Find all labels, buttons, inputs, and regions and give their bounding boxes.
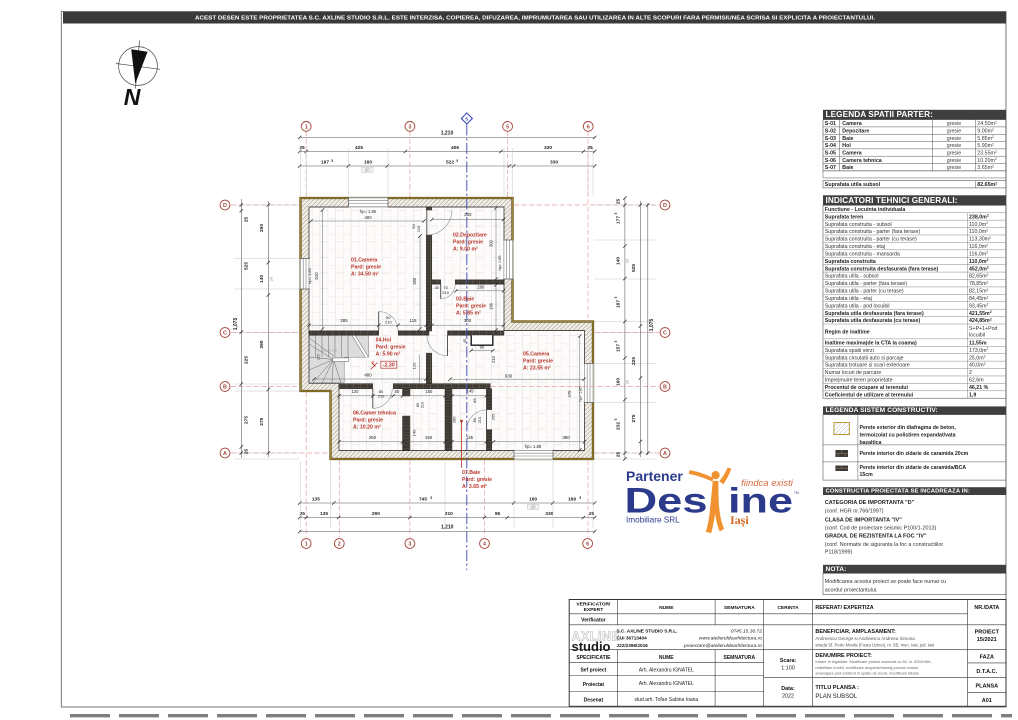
svg-text:275: 275 (244, 416, 250, 424)
svg-text:4: 4 (483, 541, 486, 547)
svg-text:475: 475 (567, 390, 572, 398)
svg-text:40,0m2: 40,0m2 (969, 362, 986, 369)
svg-text:Suprafata construita: Suprafata construita (825, 259, 876, 265)
svg-text:225: 225 (316, 354, 320, 360)
svg-text:2: 2 (969, 370, 972, 376)
svg-text:LEGENDA SISTEM CONSTRUCTIV:: LEGENDA SISTEM CONSTRUCTIV: (826, 407, 938, 414)
svg-text:Depozitare: Depozitare (842, 128, 869, 134)
svg-text:NUME: NUME (659, 655, 674, 661)
svg-text:390: 390 (562, 435, 570, 440)
svg-text:150: 150 (425, 389, 433, 394)
svg-text:232: 232 (616, 422, 622, 430)
svg-text:gresie: gresie (947, 121, 961, 127)
svg-text:46,21 %: 46,21 % (969, 385, 989, 391)
svg-text:250: 250 (369, 435, 377, 440)
svg-text:Desenat: Desenat (584, 698, 604, 704)
svg-text:Sef proiect: Sef proiect (580, 668, 606, 674)
svg-text:95: 95 (495, 511, 501, 517)
svg-text:3: 3 (408, 124, 411, 130)
svg-text:02.Depozitare: 02.Depozitare (453, 233, 487, 239)
svg-text:113,30m2: 113,30m2 (969, 236, 991, 243)
svg-text:20: 20 (270, 277, 274, 281)
svg-text:745: 745 (419, 496, 427, 502)
svg-text:NOTA:: NOTA: (826, 566, 847, 573)
svg-text:Camera: Camera (842, 121, 861, 127)
svg-text:20: 20 (531, 504, 536, 509)
svg-text:J22/2396/2016: J22/2396/2016 (617, 643, 649, 648)
svg-text:Iaşi: Iaşi (730, 513, 749, 527)
svg-text:480: 480 (364, 372, 372, 377)
svg-text:9.00m2: 9.00m2 (977, 128, 994, 135)
svg-text:196: 196 (488, 302, 493, 310)
svg-text:gresie: gresie (947, 150, 961, 156)
svg-text:120: 120 (352, 389, 360, 394)
svg-text:D: D (223, 203, 227, 209)
svg-text:1:100: 1:100 (781, 665, 795, 671)
svg-text:45: 45 (463, 339, 467, 343)
svg-text:452,0m2: 452,0m2 (969, 266, 989, 273)
svg-text:5.90m2: 5.90m2 (977, 143, 994, 150)
svg-text:strada Sf. Petru Movila (Fosta: strada Sf. Petru Movila (Fosta Uzinei), … (815, 643, 934, 648)
svg-text:A: A (663, 451, 667, 457)
svg-text:177: 177 (616, 216, 622, 224)
svg-text:140: 140 (616, 257, 622, 265)
svg-text:140: 140 (412, 429, 417, 436)
svg-text:290: 290 (372, 511, 380, 517)
svg-text:23.55m2: 23.55m2 (977, 150, 997, 157)
svg-text:Suprafata utila - subsol: Suprafata utila - subsol (825, 274, 879, 280)
svg-text:studio: studio (572, 639, 611, 654)
svg-text:hp= 1.85: hp= 1.85 (307, 267, 312, 283)
svg-text:04.Hol: 04.Hol (376, 338, 392, 344)
svg-text:S-03: S-03 (825, 136, 836, 142)
svg-text:25: 25 (616, 452, 622, 458)
svg-text:Pard: gresie: Pard: gresie (353, 417, 383, 423)
svg-text:gresie: gresie (947, 128, 961, 134)
svg-text:80: 80 (416, 403, 420, 407)
svg-text:Arh. Alexandru IGNATEL: Arh. Alexandru IGNATEL (639, 681, 694, 687)
svg-text:200: 200 (477, 284, 485, 289)
svg-text:termoizolat cu polistiren expa: termoizolat cu polistiren expandat/vata (860, 433, 956, 439)
svg-text:390: 390 (259, 340, 265, 348)
svg-text:proiectare@atelieruldearhitect: proiectare@atelieruldearhitectura.ro (683, 643, 762, 649)
svg-text:Inaltime maxima(de la CTA la c: Inaltime maxima(de la CTA la coama) (825, 340, 917, 346)
svg-text:Proiectat: Proiectat (583, 682, 605, 688)
svg-text:135: 135 (312, 496, 320, 502)
svg-text:Suprafata trotuare si scari ex: Suprafata trotuare si scari exterioare (825, 363, 910, 369)
svg-text:REFERAT/ EXPERTIZA: REFERAT/ EXPERTIZA (815, 605, 873, 611)
svg-text:25: 25 (299, 145, 305, 151)
svg-text:Verificator: Verificator (581, 617, 606, 623)
svg-text:amenajare pod existent in spat: amenajare pod existent in spatiu de locu… (815, 670, 919, 675)
svg-text:hp= 1.85: hp= 1.85 (498, 256, 502, 271)
svg-text:Pard: gresie: Pard: gresie (453, 239, 483, 245)
svg-text:(conf. HGR nr.766/1997): (conf. HGR nr.766/1997) (825, 509, 884, 515)
svg-text:hp= 1.85: hp= 1.85 (525, 444, 542, 449)
svg-text:Suprafata utila - parter (cu t: Suprafata utila - parter (cu terase) (825, 289, 904, 295)
svg-text:bazaltica: bazaltica (860, 440, 882, 446)
svg-text:Pard: gresie: Pard: gresie (456, 303, 486, 309)
svg-text:S-02: S-02 (825, 128, 836, 134)
svg-text:5: 5 (614, 212, 618, 214)
svg-text:25: 25 (244, 449, 250, 455)
svg-text:TITLU PLANSA :: TITLU PLANSA : (815, 685, 859, 691)
svg-text:3: 3 (408, 541, 411, 547)
svg-text:116,0m2: 116,0m2 (969, 251, 988, 258)
svg-text:Suprafata spatii verzi: Suprafata spatii verzi (825, 348, 874, 354)
svg-text:EXPERT: EXPERT (584, 607, 604, 613)
svg-text:Suprafata construita - parter: Suprafata construita - parter (cu terase… (825, 237, 917, 243)
svg-text:-2.30: -2.30 (383, 363, 395, 369)
svg-text:stud.arh. Tofan Sabina Ioana: stud.arh. Tofan Sabina Ioana (634, 697, 698, 703)
svg-text:Suprafata circulatii auto si p: Suprafata circulatii auto si parcaje (825, 355, 904, 361)
svg-text:510: 510 (314, 272, 319, 280)
svg-text:5: 5 (456, 159, 458, 163)
svg-text:N: N (124, 84, 141, 110)
svg-text:S-07: S-07 (825, 165, 836, 171)
svg-text:ACEST DESEN ESTE PROPRIETATEA: ACEST DESEN ESTE PROPRIETATEA S.C. AXLIN… (195, 16, 876, 22)
svg-text:50: 50 (395, 389, 400, 394)
svg-text:gresie: gresie (947, 158, 961, 164)
svg-text:P118/1999): P118/1999) (825, 549, 853, 555)
svg-text:01.Camera: 01.Camera (351, 258, 377, 264)
svg-text:93,45m2: 93,45m2 (969, 303, 989, 310)
svg-text:SEMNATURA: SEMNATURA (724, 605, 755, 611)
svg-text:6: 6 (587, 124, 590, 130)
svg-text:PLANSA: PLANSA (975, 684, 998, 690)
svg-text:S-06: S-06 (825, 158, 836, 164)
svg-text:1,075: 1,075 (233, 318, 239, 331)
svg-text:300: 300 (464, 212, 472, 217)
svg-text:Suprafata construita - etaj: Suprafata construita - etaj (825, 244, 885, 250)
svg-text:285: 285 (340, 318, 348, 323)
svg-text:5: 5 (506, 124, 509, 130)
svg-text:160: 160 (529, 496, 537, 502)
svg-text:SPECIFICATIE: SPECIFICATIE (576, 655, 611, 661)
svg-text:hp= 1.85: hp= 1.85 (360, 209, 377, 214)
svg-text:10.20m2: 10.20m2 (977, 157, 997, 164)
svg-text:C: C (223, 330, 227, 336)
svg-text:(conf. Normativ de siguranta l: (conf. Normativ de siguranta la foc a co… (825, 542, 944, 548)
svg-text:Andreescu George si Andreescu: Andreescu George si Andreescu Andreea Si… (815, 636, 915, 641)
svg-text:630: 630 (505, 374, 513, 379)
svg-text:Pard: gresie: Pard: gresie (462, 477, 492, 483)
svg-text:CLASA DE IMPORTANTA "IV": CLASA DE IMPORTANTA "IV" (825, 518, 902, 524)
svg-text:S+P+1+Pod: S+P+1+Pod (969, 326, 998, 332)
svg-text:BENEFICIAR, AMPLASAMENT:: BENEFICIAR, AMPLASAMENT: (815, 629, 896, 635)
svg-text:CERINTA: CERINTA (777, 605, 799, 611)
svg-text:Hol: Hol (842, 143, 851, 149)
svg-text:A01: A01 (982, 698, 992, 704)
svg-text:www.atelieruldearhitectura.ro: www.atelieruldearhitectura.ro (699, 636, 762, 642)
svg-text:62,6m: 62,6m (969, 378, 984, 384)
svg-text:D.T.A.C.: D.T.A.C. (976, 669, 997, 675)
svg-text:522: 522 (446, 159, 454, 165)
svg-text:NR./DATA: NR./DATA (974, 605, 999, 611)
svg-text:A: 34.50 m²: A: 34.50 m² (351, 271, 379, 277)
svg-text:Suprafata utila desfasurata (c: Suprafata utila desfasurata (cu terase) (825, 318, 921, 324)
svg-text:5: 5 (614, 340, 618, 342)
svg-text:78,85m2: 78,85m2 (969, 280, 989, 287)
svg-text:07.Baie: 07.Baie (462, 470, 480, 476)
svg-text:Procentul de ocupare al terenu: Procentul de ocupare al terenului (825, 385, 909, 391)
svg-text:1,210: 1,210 (441, 131, 454, 137)
svg-text:5: 5 (331, 159, 333, 163)
svg-text:1,210: 1,210 (441, 525, 454, 531)
svg-text:110,0m2: 110,0m2 (969, 258, 989, 265)
svg-text:225: 225 (244, 356, 250, 364)
svg-text:fiindca existi: fiindca existi (741, 478, 794, 489)
svg-text:145: 145 (466, 435, 474, 440)
svg-text:Intrare in legalitate: Modific: Intrare in legalitate: Modificare proiec… (815, 659, 931, 664)
svg-text:20: 20 (626, 380, 630, 384)
svg-text:0745.15.30.72: 0745.15.30.72 (731, 628, 763, 634)
svg-text:150: 150 (425, 435, 433, 440)
svg-text:gresie: gresie (947, 143, 961, 149)
svg-text:5: 5 (614, 296, 618, 298)
svg-text:330: 330 (545, 511, 553, 517)
svg-text:3.65m2: 3.65m2 (977, 164, 994, 171)
svg-text:Regim de inaltime: Regim de inaltime (825, 329, 870, 335)
svg-text:300: 300 (464, 318, 472, 323)
svg-text:Suprafata teren: Suprafata teren (825, 214, 864, 220)
svg-text:82,15m2: 82,15m2 (969, 288, 989, 295)
svg-text:Numar locuri de parcare: Numar locuri de parcare (825, 370, 881, 376)
svg-text:157: 157 (616, 344, 622, 352)
svg-text:S-01: S-01 (825, 121, 836, 127)
svg-text:CATEGORIA DE IMPORTANTA "D": CATEGORIA DE IMPORTANTA "D" (825, 500, 915, 506)
svg-text:406: 406 (451, 145, 459, 151)
svg-text:CONSTRUCTIA PROIECTATA SE INCA: CONSTRUCTIA PROIECTATA SE INCADREAZA IN: (826, 489, 970, 495)
svg-text:169: 169 (568, 496, 576, 502)
svg-text:A: 10.20 m²: A: 10.20 m² (353, 424, 381, 430)
svg-text:160: 160 (364, 159, 372, 165)
svg-text:D: D (663, 203, 667, 209)
svg-text:1: 1 (305, 124, 308, 130)
svg-text:280: 280 (452, 416, 457, 423)
svg-text:A: 9.00 m²: A: 9.00 m² (453, 246, 478, 252)
svg-text:160: 160 (616, 378, 622, 386)
svg-text:A: 5.85 m²: A: 5.85 m² (456, 310, 481, 316)
svg-text:Coeficientul de utilizare al t: Coeficientul de utilizare al terenului (825, 392, 914, 398)
svg-text:Suprafata construita - mansard: Suprafata construita - mansarda (825, 251, 900, 257)
svg-text:84,45m2: 84,45m2 (969, 295, 989, 302)
svg-text:210: 210 (416, 225, 421, 232)
svg-text:Imprejmuire teren proprietate: Imprejmuire teren proprietate (825, 378, 893, 384)
svg-text:05.Camera: 05.Camera (523, 352, 549, 358)
svg-text:gresie: gresie (947, 136, 961, 142)
svg-text:PLAN SUBSOL: PLAN SUBSOL (815, 694, 857, 700)
svg-text:Baie: Baie (842, 136, 853, 142)
svg-text:reabilitare imobil, modificare: reabilitare imobil, modificare acoperis/… (815, 665, 919, 670)
svg-text:90: 90 (480, 344, 485, 349)
svg-text:acordul proiectantului.: acordul proiectantului. (825, 588, 878, 594)
svg-text:FAZA: FAZA (980, 655, 994, 661)
svg-text:Suprafata utila desfasurata (f: Suprafata utila desfasurata (fara terase… (825, 311, 924, 317)
svg-text:5: 5 (614, 418, 618, 420)
svg-text:Perete exterior din diafragma: Perete exterior din diafragma de beton, (860, 425, 957, 431)
svg-text:421,55m2: 421,55m2 (969, 310, 992, 317)
svg-text:2022: 2022 (782, 693, 794, 699)
svg-text:Suprafata utila - parter (fara: Suprafata utila - parter (fara terase) (825, 281, 908, 287)
svg-text:Pard: gresie: Pard: gresie (523, 358, 553, 364)
svg-text:B: B (663, 384, 667, 390)
svg-text:238,0m2: 238,0m2 (969, 214, 989, 221)
svg-text:425: 425 (355, 145, 363, 151)
svg-text:Suprafata utila - etaj: Suprafata utila - etaj (825, 296, 872, 302)
svg-text:Pard: gresie: Pard: gresie (351, 264, 381, 270)
svg-text:A: 3.65 m²: A: 3.65 m² (462, 484, 487, 490)
svg-text:A: 5.90 m²: A: 5.90 m² (376, 351, 401, 357)
svg-text:B: B (223, 384, 227, 390)
svg-text:275: 275 (631, 414, 637, 422)
svg-text:Camera: Camera (842, 150, 861, 156)
svg-text:210: 210 (442, 290, 449, 295)
svg-text:1,075: 1,075 (649, 319, 655, 332)
svg-text:NUME: NUME (659, 605, 674, 611)
svg-text:S-05: S-05 (825, 150, 836, 156)
svg-text:S: S (465, 117, 468, 122)
svg-text:gresie: gresie (947, 165, 961, 171)
svg-text:TM: TM (794, 491, 799, 495)
svg-text:120: 120 (412, 362, 417, 369)
svg-text:Imobiliare SRL: Imobiliare SRL (626, 516, 680, 525)
svg-text:110,0m2: 110,0m2 (969, 221, 988, 228)
svg-text:A: 23.55 m²: A: 23.55 m² (523, 365, 551, 371)
svg-text:116,0m2: 116,0m2 (969, 243, 988, 250)
svg-text:INDICATORI TEHNICI GENERALI:: INDICATORI TEHNICI GENERALI: (826, 196, 958, 205)
svg-text:1: 1 (305, 541, 308, 547)
svg-text:(conf. Cod de proiectare seism: (conf. Cod de proiectare seismic P100/1-… (825, 525, 937, 531)
svg-text:GRADUL DE REZISTENTA LA FOC "I: GRADUL DE REZISTENTA LA FOC "IV" (825, 534, 927, 540)
svg-text:Perete interior din zidarie de: Perete interior din zidarie de caramida/… (860, 465, 967, 471)
svg-text:S-04: S-04 (825, 143, 836, 149)
svg-text:82,65m2: 82,65m2 (969, 273, 989, 280)
svg-text:330: 330 (544, 145, 552, 151)
svg-text:210: 210 (477, 416, 482, 423)
svg-text:300: 300 (488, 239, 493, 247)
svg-text:197: 197 (321, 159, 329, 165)
svg-text:173,0m2: 173,0m2 (969, 347, 989, 354)
svg-text:210: 210 (385, 320, 392, 325)
svg-text:110,0m2: 110,0m2 (969, 228, 988, 235)
svg-text:Suprafata construita desfasura: Suprafata construita desfasurata (fara t… (825, 266, 939, 272)
svg-text:Modificarea acestui proiect se: Modificarea acestui proiect se poate fac… (825, 579, 946, 585)
svg-text:Data:: Data: (781, 686, 795, 692)
svg-text:A: A (223, 451, 227, 457)
svg-text:VERIFICATOR/: VERIFICATOR/ (576, 602, 611, 608)
svg-text:Suprafata construita - subsol: Suprafata construita - subsol (825, 222, 892, 228)
svg-text:Baie: Baie (842, 165, 853, 171)
svg-text:Suprafata utila subsol: Suprafata utila subsol (825, 182, 881, 188)
svg-text:5.85m2: 5.85m2 (977, 135, 994, 142)
svg-text:525: 525 (631, 264, 637, 272)
svg-text:11,55m: 11,55m (969, 340, 987, 346)
svg-text:Camera tehnica: Camera tehnica (842, 158, 882, 164)
svg-text:Perete interior din zidarie de: Perete interior din zidarie de caramida … (860, 451, 969, 457)
svg-text:330: 330 (550, 159, 558, 165)
svg-text:25: 25 (616, 199, 622, 205)
svg-text:Scara:: Scara: (780, 658, 797, 664)
svg-text:210: 210 (420, 402, 424, 408)
svg-text:Arh. Alexandru IGNATEL: Arh. Alexandru IGNATEL (639, 668, 694, 674)
svg-text:CUI 36713404: CUI 36713404 (617, 636, 648, 641)
svg-text:310: 310 (445, 511, 453, 517)
svg-text:390: 390 (412, 277, 417, 285)
svg-text:24.50m2: 24.50m2 (977, 121, 997, 128)
svg-text:15cm: 15cm (860, 472, 874, 478)
svg-text:424,85m2: 424,85m2 (969, 318, 992, 325)
svg-text:82.65m2: 82.65m2 (977, 182, 997, 189)
svg-text:115: 115 (410, 318, 418, 323)
svg-text:30: 30 (435, 285, 440, 290)
svg-text:6: 6 (586, 541, 589, 547)
svg-text:Suprafata construita - parter: Suprafata construita - parter (fara tera… (825, 229, 921, 235)
svg-text:LEGENDA SPATII PARTER:: LEGENDA SPATII PARTER: (826, 110, 933, 119)
svg-text:210: 210 (491, 355, 496, 363)
svg-text:25,0m2: 25,0m2 (969, 355, 986, 362)
svg-text:hp= 1.85: hp= 1.85 (579, 387, 583, 402)
svg-text:PROIECT: PROIECT (975, 630, 1000, 636)
svg-text:Functiune - Locuinta individua: Functiune - Locuinta individuala (825, 207, 906, 213)
svg-text:5: 5 (430, 496, 432, 500)
svg-text:5: 5 (579, 496, 581, 500)
svg-text:14 Trepte 26 Tore: 14 Trepte 26 Tore (317, 349, 338, 353)
svg-text:145: 145 (467, 389, 475, 394)
svg-text:Suprafata utila - pod locuibil: Suprafata utila - pod locuibil (825, 303, 890, 309)
svg-text:140: 140 (259, 275, 265, 283)
svg-text:225: 225 (631, 357, 637, 365)
svg-text:525: 525 (244, 262, 250, 270)
svg-text:20: 20 (365, 167, 370, 172)
svg-text:20: 20 (626, 259, 630, 263)
svg-text:135: 135 (320, 511, 328, 517)
svg-text:210: 210 (378, 394, 385, 399)
svg-text:S.C. AXLINE STUDIO S.R.L.: S.C. AXLINE STUDIO S.R.L. (617, 628, 678, 633)
svg-text:187: 187 (616, 300, 622, 308)
svg-text:03.Baie: 03.Baie (456, 297, 474, 303)
svg-text:06.Camer tehnica: 06.Camer tehnica (353, 411, 396, 417)
svg-text:25: 25 (244, 217, 250, 223)
svg-text:25: 25 (589, 511, 595, 517)
svg-text:15/2021: 15/2021 (977, 637, 997, 643)
svg-text:480: 480 (364, 215, 372, 220)
svg-text:85: 85 (472, 398, 477, 403)
svg-text:250: 250 (259, 224, 265, 232)
svg-text:2: 2 (338, 541, 341, 547)
svg-text:C: C (663, 330, 667, 336)
svg-text:1,9: 1,9 (969, 392, 976, 398)
svg-text:275: 275 (259, 417, 265, 425)
svg-text:Pard: gresie: Pard: gresie (376, 344, 406, 350)
svg-text:SEMNATURA: SEMNATURA (724, 655, 756, 661)
svg-text:locuibil: locuibil (969, 332, 985, 338)
svg-text:265: 265 (490, 413, 495, 420)
